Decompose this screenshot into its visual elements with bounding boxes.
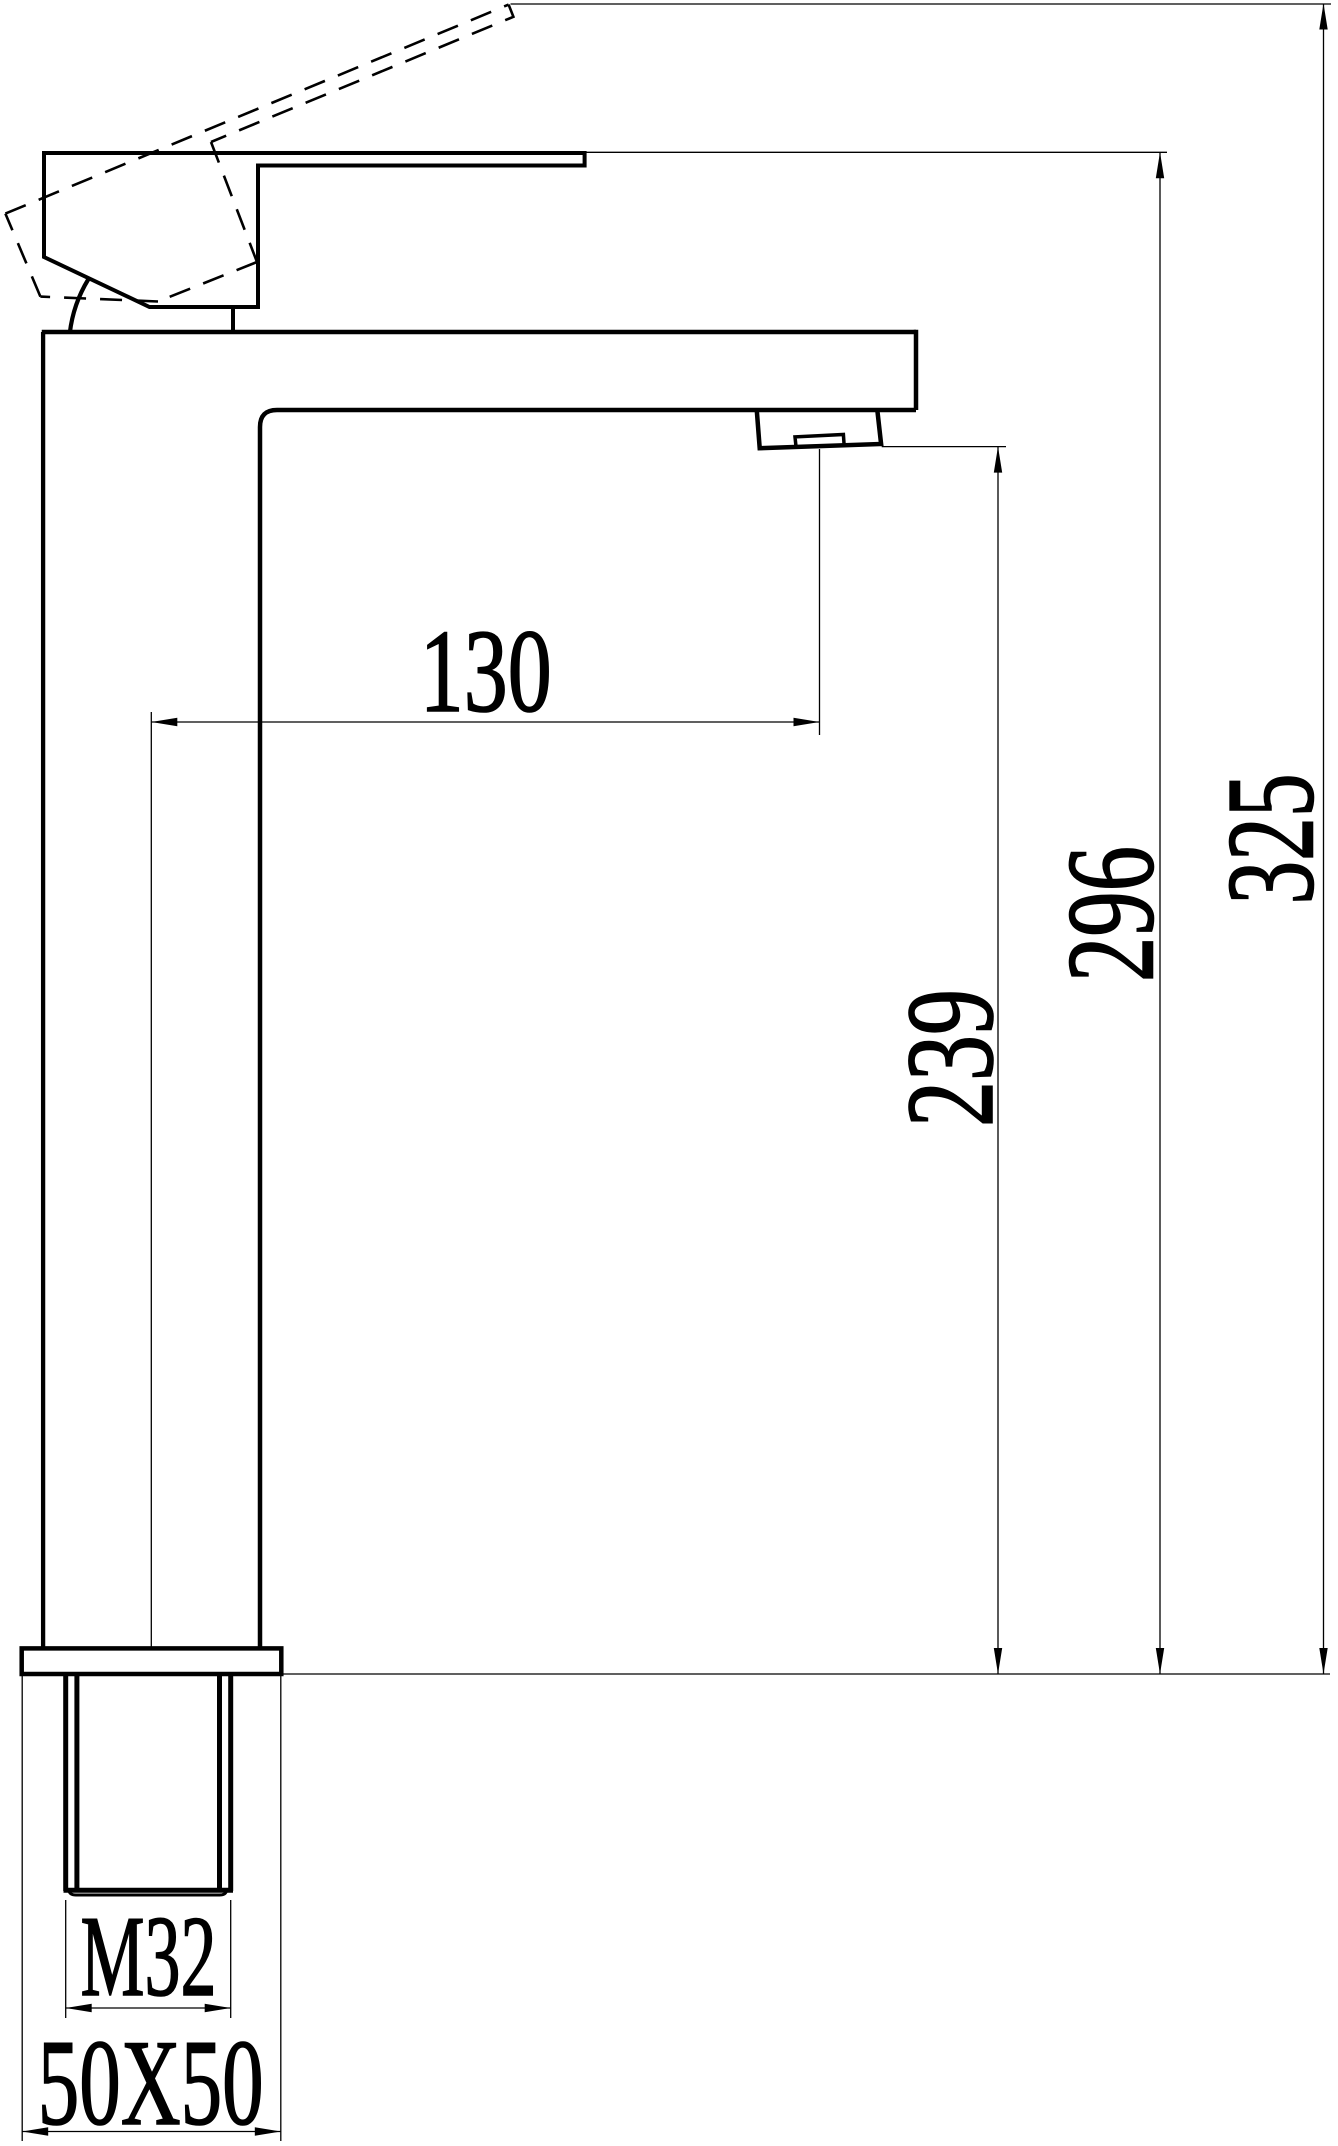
svg-text:296: 296 [1043,846,1181,982]
svg-text:325: 325 [1203,774,1338,905]
svg-text:50X50: 50X50 [38,2014,264,2146]
svg-text:M32: M32 [81,1893,217,2020]
svg-text:130: 130 [420,605,552,737]
svg-text:239: 239 [882,989,1020,1127]
